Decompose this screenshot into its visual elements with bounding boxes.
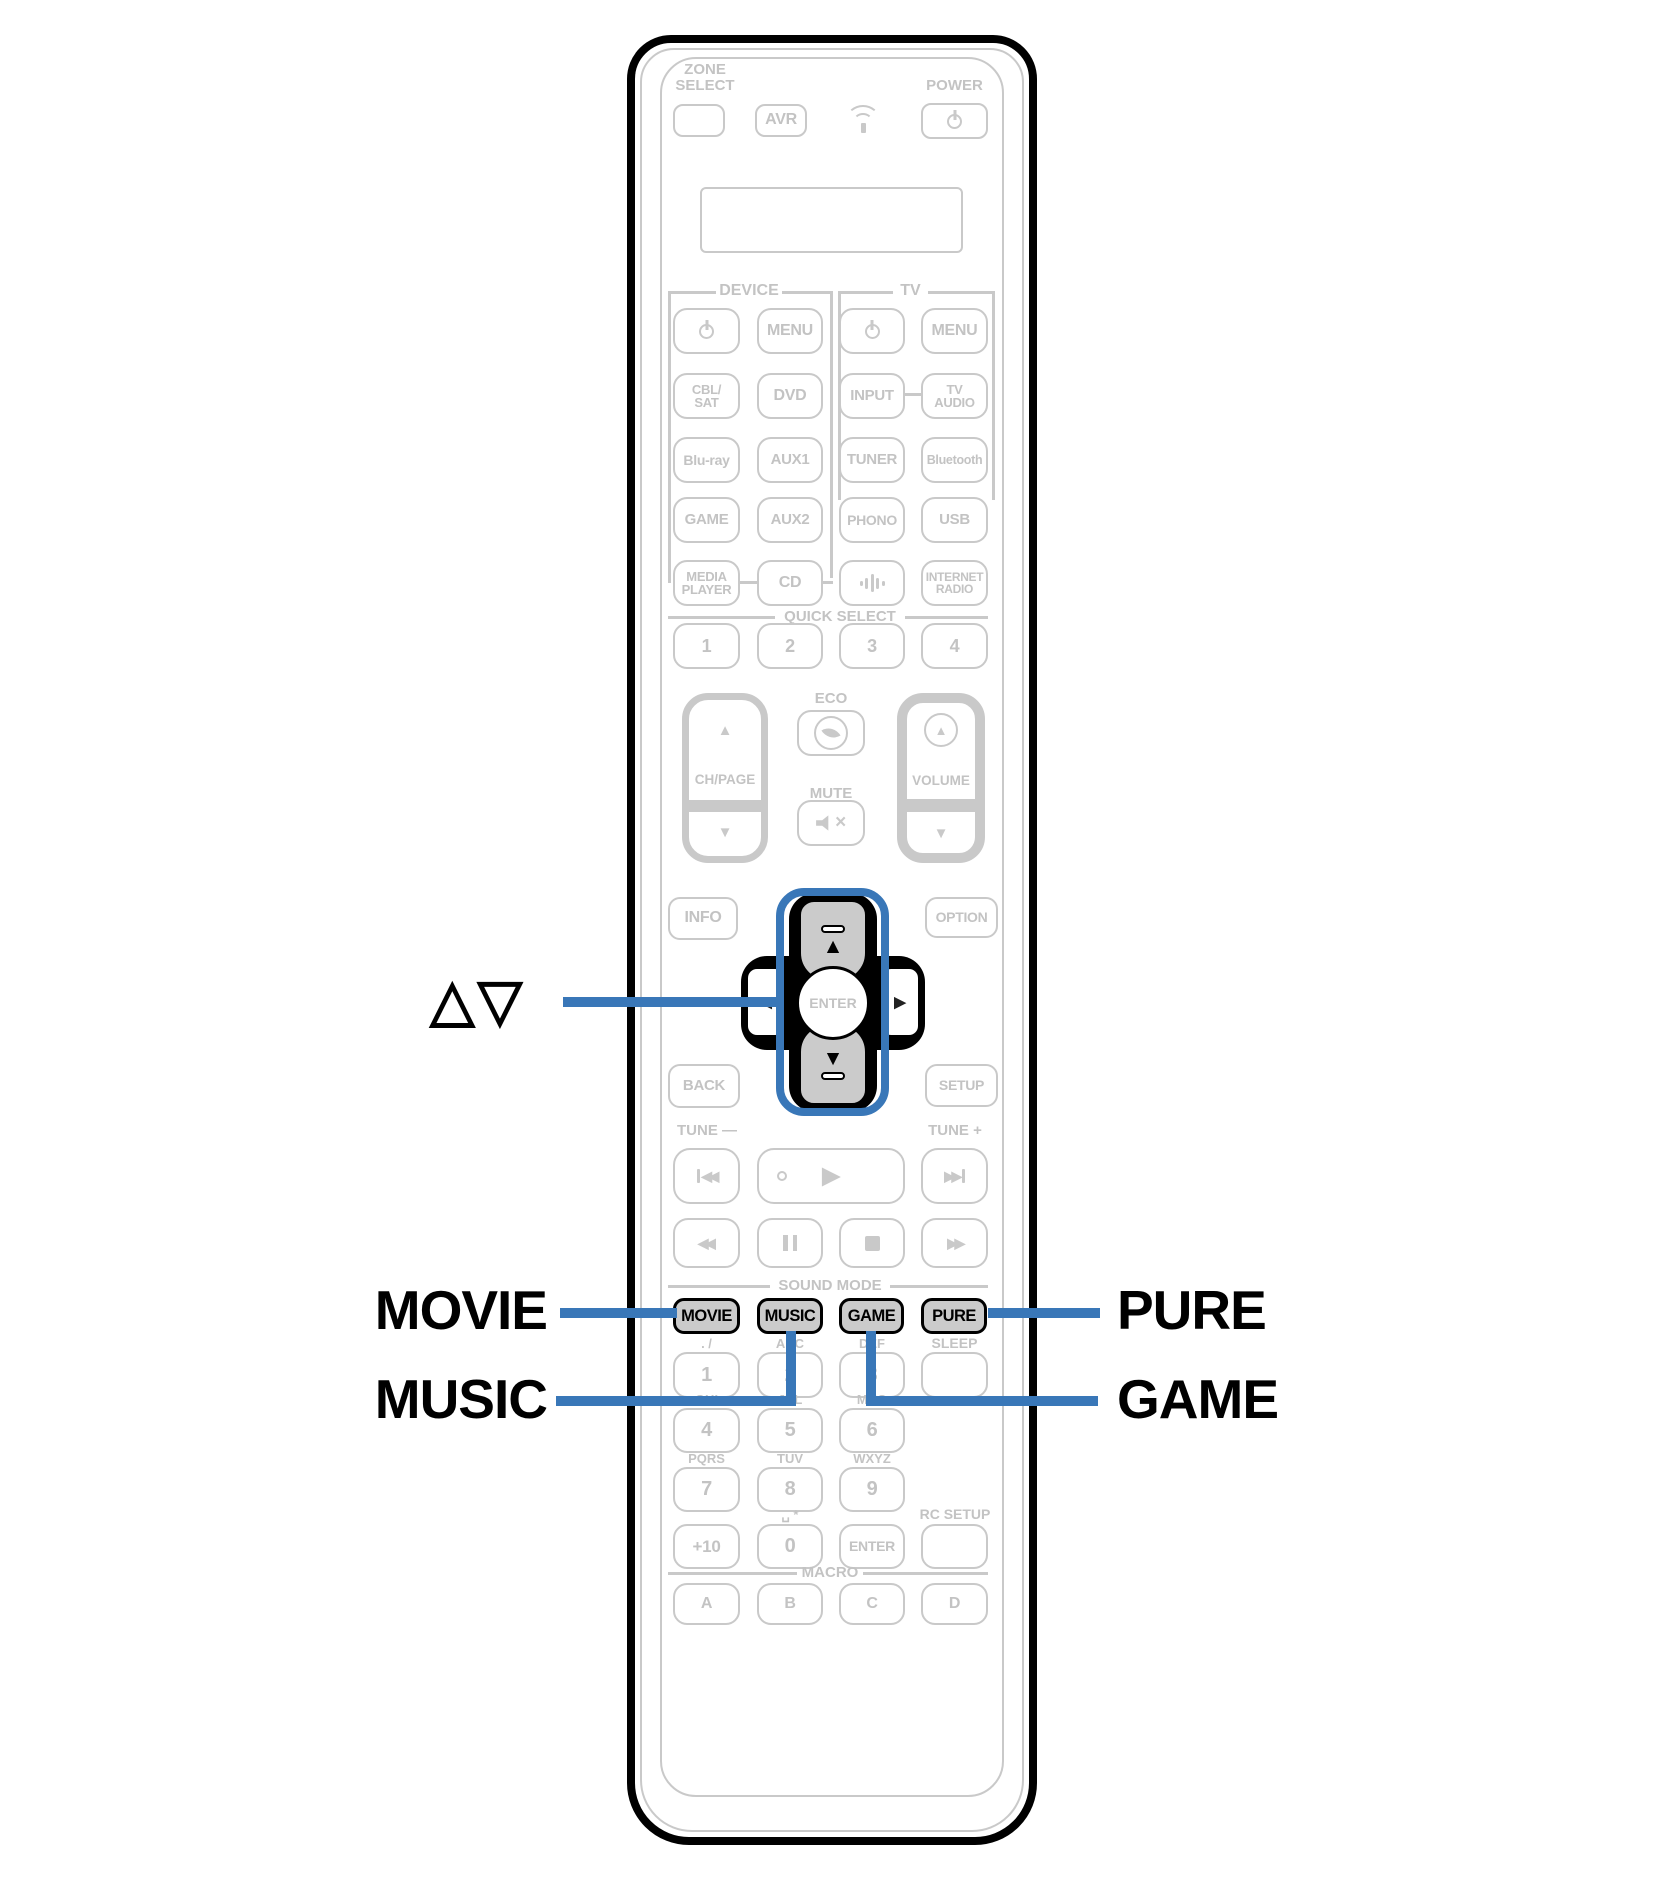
fast-forward-icon: ▶▶ — [947, 1236, 962, 1250]
pause-button[interactable] — [757, 1218, 823, 1268]
digit-9-button[interactable]: 9 — [839, 1467, 905, 1512]
macro-b-button[interactable]: B — [757, 1583, 823, 1625]
stop-icon — [865, 1236, 880, 1251]
movie-callout-label: MOVIE — [332, 1283, 547, 1338]
music-callout-line — [786, 1331, 796, 1406]
tune-plus-label: TUNE + — [917, 1123, 993, 1139]
sound-mode-line — [668, 1285, 770, 1288]
setup-button[interactable]: SETUP — [925, 1064, 998, 1107]
pure-callout-label: PURE — [1117, 1283, 1266, 1338]
rewind-button[interactable]: ◀◀ — [673, 1218, 740, 1268]
sound-mode-line — [890, 1285, 988, 1288]
game-callout-line — [866, 1396, 1098, 1406]
key1-letters: . / — [673, 1337, 740, 1351]
rewind-icon: ◀◀ — [698, 1236, 713, 1250]
skip-forward-icon: ▶▶ — [944, 1169, 959, 1183]
remote-diagram: ZONE SELECT AVR POWER DEVICE TV MENU MEN… — [0, 0, 1665, 1878]
macro-c-button[interactable]: C — [839, 1583, 905, 1625]
channel-page-rocker[interactable]: ▲ CH/PAGE ▼ — [682, 693, 768, 863]
mute-x-icon: × — [835, 813, 846, 832]
game-callout-label: GAME — [1117, 1372, 1278, 1427]
tv-power-button[interactable] — [839, 308, 905, 354]
digit-6-button[interactable]: 6 — [839, 1408, 905, 1453]
mute-button[interactable]: × — [797, 800, 865, 846]
skip-back-icon: ◀◀ — [701, 1169, 716, 1183]
quick-select-4-button[interactable]: 4 — [921, 623, 988, 669]
volume-rocker[interactable]: ▲ VOLUME ▼ — [897, 693, 985, 863]
power-icon — [865, 324, 880, 339]
quick-select-2-button[interactable]: 2 — [757, 623, 823, 669]
key9-letters: WXYZ — [839, 1452, 905, 1466]
key7-letters: PQRS — [673, 1452, 740, 1466]
signal-transmit-icon — [845, 103, 881, 135]
quick-select-line — [668, 616, 775, 619]
device-section-label: DEVICE — [714, 283, 784, 300]
input-button[interactable]: INPUT — [839, 373, 905, 419]
usb-button[interactable]: USB — [921, 497, 988, 543]
aux1-button[interactable]: AUX1 — [757, 437, 823, 483]
cursor-callout-line — [563, 997, 782, 1007]
tv-bracket-line — [928, 291, 992, 294]
keypad-enter-button[interactable]: ENTER — [839, 1524, 905, 1569]
rc-setup-button[interactable] — [921, 1524, 988, 1569]
stop-button[interactable] — [839, 1218, 905, 1268]
rc-setup-label: RC SETUP — [917, 1507, 993, 1522]
channel-up-icon[interactable]: ▲ — [689, 722, 761, 739]
key0-symbols: ␣ * — [757, 1508, 823, 1522]
game-source-button[interactable]: GAME — [673, 497, 740, 543]
media-player-button[interactable]: MEDIA PLAYER — [673, 560, 740, 606]
tv-bracket-side — [992, 291, 995, 500]
power-icon — [947, 114, 962, 129]
channel-page-label: CH/PAGE — [689, 772, 761, 787]
movie-callout-line — [560, 1308, 677, 1318]
skip-forward-button[interactable]: ▶▶ — [921, 1148, 988, 1204]
digit-5-button[interactable]: 5 — [757, 1408, 823, 1453]
skip-back-button[interactable]: ◀◀ — [673, 1148, 740, 1204]
device-menu-button[interactable]: MENU — [757, 308, 823, 354]
zone-select-label: ZONE SELECT — [670, 62, 740, 94]
cd-button[interactable]: CD — [757, 560, 823, 606]
info-button[interactable]: INFO — [668, 897, 738, 940]
plus-ten-button[interactable]: +10 — [673, 1524, 740, 1569]
quick-select-line — [905, 616, 988, 619]
heos-button[interactable] — [839, 560, 905, 606]
sleep-label: SLEEP — [921, 1336, 988, 1351]
fast-forward-button[interactable]: ▶▶ — [921, 1218, 988, 1268]
avr-button[interactable]: AVR — [755, 104, 807, 137]
aux2-button[interactable]: AUX2 — [757, 497, 823, 543]
dvd-button[interactable]: DVD — [757, 373, 823, 419]
tv-menu-button[interactable]: MENU — [921, 308, 988, 354]
device-bracket-line — [668, 291, 716, 294]
device-bracket-side — [830, 291, 833, 578]
power-button[interactable] — [921, 103, 988, 139]
cbl-sat-button[interactable]: CBL/ SAT — [673, 373, 740, 419]
macro-d-button[interactable]: D — [921, 1583, 988, 1625]
tv-audio-button[interactable]: TV AUDIO — [921, 373, 988, 419]
eco-label: ECO — [797, 691, 865, 707]
speaker-mute-icon — [816, 815, 833, 831]
music-callout-label: MUSIC — [332, 1372, 547, 1427]
channel-down-icon[interactable]: ▼ — [689, 824, 761, 841]
quick-select-1-button[interactable]: 1 — [673, 623, 740, 669]
pure-callout-line — [988, 1308, 1100, 1318]
cursor-updown-callout-label: △▽ — [430, 972, 525, 1030]
option-button[interactable]: OPTION — [925, 897, 998, 938]
device-power-button[interactable] — [673, 308, 740, 354]
movie-button[interactable]: MOVIE — [673, 1298, 740, 1334]
internet-radio-button[interactable]: INTERNET RADIO — [921, 560, 988, 606]
key8-letters: TUV — [757, 1452, 823, 1466]
digit-8-button[interactable]: 8 — [757, 1467, 823, 1512]
device-bracket-side — [668, 291, 671, 583]
tv-section-label: TV — [893, 283, 928, 300]
eco-leaf-icon — [821, 723, 840, 742]
game-callout-line — [866, 1331, 876, 1406]
music-callout-line — [556, 1396, 796, 1406]
play-button[interactable]: ▶ — [757, 1148, 905, 1204]
eco-button[interactable] — [797, 710, 865, 756]
power-icon — [699, 324, 714, 339]
phono-button[interactable]: PHONO — [839, 497, 905, 543]
volume-up-icon[interactable]: ▲ — [935, 723, 948, 738]
macro-line — [668, 1572, 797, 1575]
power-label: POWER — [921, 78, 988, 94]
play-icon: ▶ — [822, 1164, 839, 1187]
volume-label: VOLUME — [907, 773, 975, 788]
bluray-button[interactable]: Blu-ray — [673, 437, 740, 483]
back-button[interactable]: BACK — [668, 1064, 740, 1108]
display-window — [700, 187, 963, 253]
macro-label: MACRO — [797, 1565, 863, 1581]
tv-bracket-line — [838, 291, 893, 294]
game-button[interactable]: GAME — [839, 1298, 904, 1334]
volume-down-icon[interactable]: ▼ — [907, 825, 975, 842]
tune-minus-label: TUNE — — [666, 1123, 748, 1139]
digit-4-button[interactable]: 4 — [673, 1408, 740, 1453]
pause-icon — [783, 1235, 797, 1251]
zone-select-button[interactable] — [673, 104, 725, 137]
heos-icon — [860, 574, 885, 592]
media-cd-link — [738, 581, 759, 584]
quick-select-3-button[interactable]: 3 — [839, 623, 905, 669]
bluetooth-button[interactable]: Bluetooth — [921, 437, 988, 483]
macro-a-button[interactable]: A — [673, 1583, 740, 1625]
tuner-button[interactable]: TUNER — [839, 437, 905, 483]
macro-line — [863, 1572, 988, 1575]
record-dot-icon — [777, 1171, 787, 1181]
pure-button[interactable]: PURE — [921, 1298, 987, 1334]
digit-0-button[interactable]: 0 — [757, 1524, 823, 1569]
cursor-highlight-box — [776, 888, 889, 1116]
sound-mode-label: SOUND MODE — [770, 1278, 890, 1294]
music-button[interactable]: MUSIC — [757, 1298, 823, 1334]
digit-7-button[interactable]: 7 — [673, 1467, 740, 1512]
device-bracket-line — [782, 291, 830, 294]
cursor-right-icon: ▶ — [894, 993, 906, 1011]
sleep-button[interactable] — [921, 1352, 988, 1398]
